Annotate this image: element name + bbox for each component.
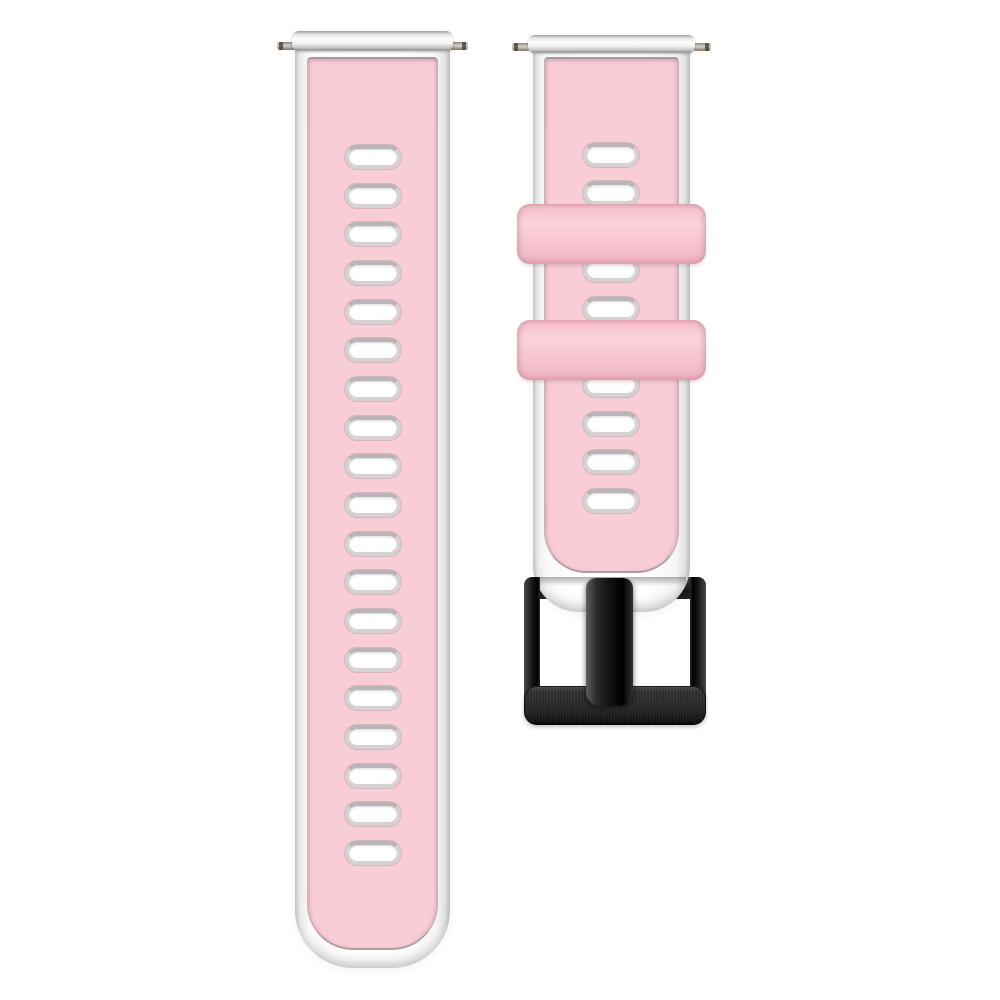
strap-hole — [345, 493, 401, 517]
strap-hole — [345, 261, 401, 285]
buckle-tongue — [586, 578, 633, 706]
strap-hole — [345, 609, 401, 633]
strap-body — [295, 32, 450, 968]
strap-hole — [345, 145, 401, 169]
strap-hole — [345, 338, 401, 362]
strap-hole — [583, 143, 639, 167]
strap-hole — [345, 686, 401, 710]
strap-hole — [345, 802, 401, 826]
strap-hole — [345, 300, 401, 324]
strap-hole — [345, 725, 401, 749]
strap-hole — [583, 489, 639, 513]
keeper-loop-upper — [517, 204, 706, 264]
spring-bar-cap — [292, 31, 453, 51]
strap-hole — [345, 416, 401, 440]
spring-bar-pin-right — [693, 43, 711, 51]
strap-hole — [345, 570, 401, 594]
right-strap — [512, 35, 711, 727]
strap-hole — [583, 181, 639, 205]
left-strap — [277, 31, 468, 968]
strap-hole — [345, 454, 401, 478]
spring-bar-cap — [528, 35, 695, 53]
left-strap-holes — [295, 32, 450, 968]
strap-hole — [345, 184, 401, 208]
strap-hole — [583, 297, 639, 321]
strap-hole — [345, 841, 401, 865]
strap-hole — [583, 450, 639, 474]
strap-hole — [345, 648, 401, 672]
strap-hole — [345, 222, 401, 246]
strap-hole — [345, 377, 401, 401]
strap-hole — [583, 412, 639, 436]
strap-hole — [345, 764, 401, 788]
strap-hole — [345, 532, 401, 556]
product-photo — [0, 0, 1000, 1000]
keeper-loop-lower — [517, 320, 706, 380]
